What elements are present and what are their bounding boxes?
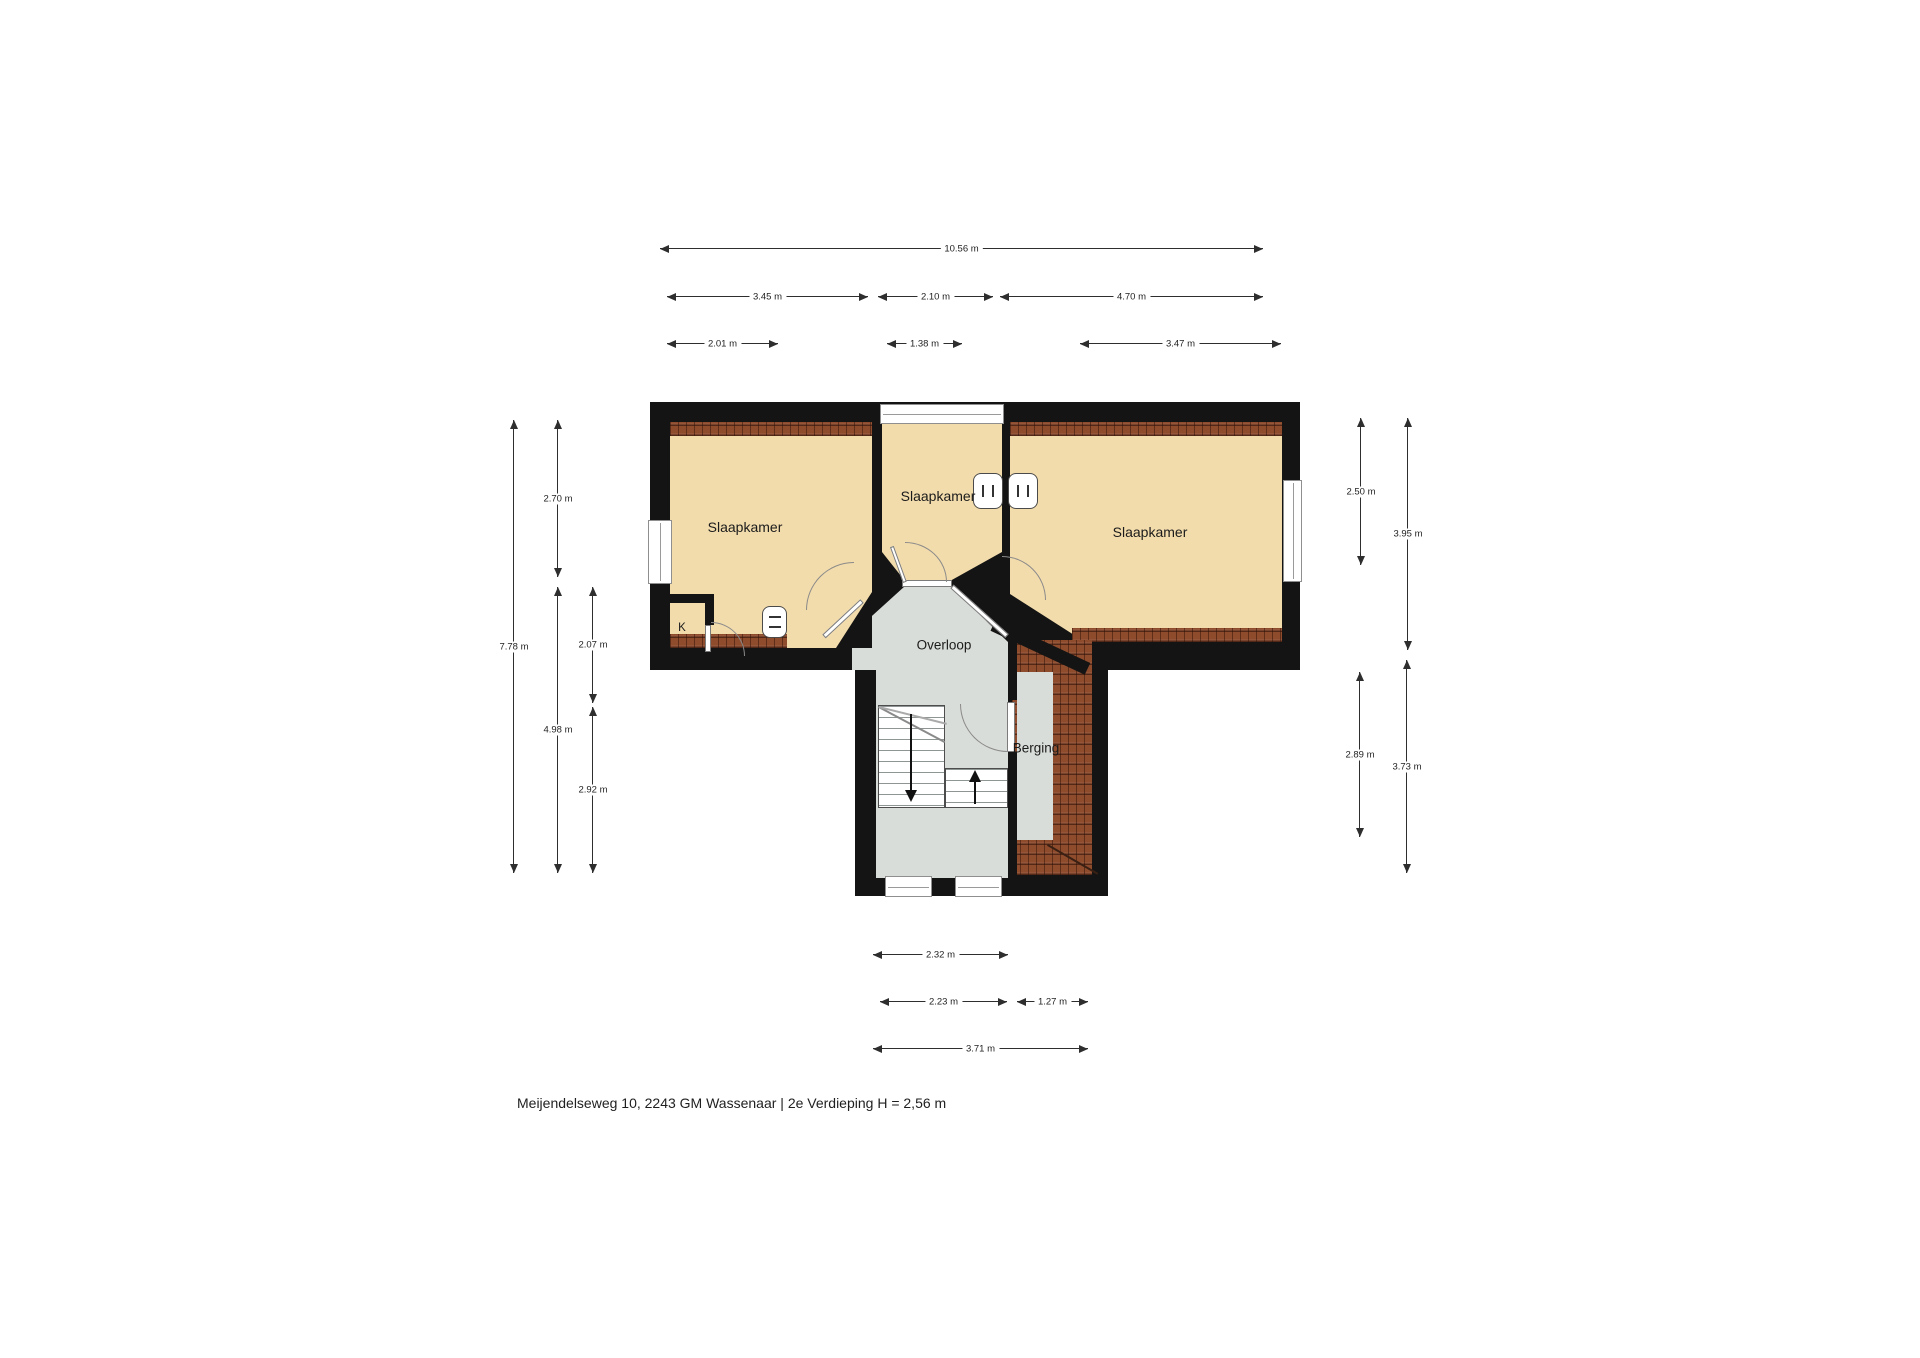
stairs-up-arrow-icon — [969, 770, 981, 782]
dimension-top-total: 10.56 m — [660, 248, 1263, 249]
room-label-left-bedroom: Slaapkamer — [708, 519, 783, 535]
room-label-closet: K — [678, 622, 686, 634]
roof-hatch-right-top — [1010, 422, 1282, 436]
dimension-label: 3.73 m — [1388, 761, 1425, 772]
dimension-bottom-total: 3.71 m — [873, 1048, 1088, 1049]
radiator-glyph — [769, 616, 781, 628]
radiator-glyph — [1017, 485, 1029, 497]
roof-hatch-right-bottom — [1072, 628, 1282, 642]
dimension-label: 7.78 m — [495, 641, 532, 652]
dimension-label: 2.89 m — [1341, 749, 1378, 760]
address-caption: Meijendelseweg 10, 2243 GM Wassenaar | 2… — [517, 1095, 946, 1111]
dimension-label: 3.95 m — [1389, 529, 1426, 540]
radiator-icon-middle-a — [973, 473, 1003, 509]
dimension-bottom-inner-left: 2.23 m — [880, 1001, 1007, 1002]
dimension-label: 1.27 m — [1034, 997, 1071, 1008]
dimension-label: 2.01 m — [704, 339, 741, 350]
dimension-bottom-inner-right: 1.27 m — [1017, 1001, 1088, 1002]
dimension-label: 2.07 m — [574, 640, 611, 651]
window-stairwell-2 — [955, 876, 1002, 897]
dimension-label: 2.10 m — [917, 292, 954, 303]
storage-wall-upper — [1008, 640, 1017, 700]
dimension-left-inner-lower: 2.92 m — [592, 707, 593, 873]
dimension-right-lower-inner: 2.89 m — [1359, 672, 1360, 837]
dimension-label: 3.45 m — [749, 292, 786, 303]
dimension-label: 3.71 m — [962, 1044, 999, 1055]
dimension-top-inner-right: 3.47 m — [1080, 343, 1281, 344]
window-left-bedroom — [648, 520, 672, 584]
room-label-storage: Berging — [1013, 741, 1060, 756]
dimension-right-lower-outer: 3.73 m — [1406, 660, 1407, 873]
window-middle-bedroom — [880, 404, 1004, 424]
dimension-label: 1.38 m — [906, 339, 943, 350]
closet-wall-top — [668, 594, 714, 603]
dimension-left-total: 7.78 m — [513, 420, 514, 873]
stairs-down-arrow-shaft — [910, 714, 912, 792]
dimension-top-right: 4.70 m — [1000, 296, 1263, 297]
dimension-label: 2.23 m — [925, 997, 962, 1008]
dimension-label: 2.70 m — [539, 493, 576, 504]
dimension-left-inner-upper: 2.07 m — [592, 587, 593, 703]
dimension-label: 4.98 m — [539, 725, 576, 736]
room-label-middle-bedroom: Slaapkamer — [901, 488, 976, 504]
radiator-icon-middle-b — [1008, 473, 1038, 509]
dimension-bottom-stem: 2.32 m — [873, 954, 1008, 955]
window-right-bedroom — [1283, 480, 1302, 582]
dimension-top-middle: 2.10 m — [878, 296, 993, 297]
dimension-right-upper-inner: 2.50 m — [1360, 418, 1361, 565]
dimension-label: 4.70 m — [1113, 292, 1150, 303]
dimension-right-upper-outer: 3.95 m — [1407, 418, 1408, 650]
storage-floor — [1017, 672, 1053, 840]
dimension-top-inner-middle: 1.38 m — [887, 343, 962, 344]
dimension-label: 3.47 m — [1162, 339, 1199, 350]
stairs-down-arrow-icon — [905, 790, 917, 802]
stairs-up-arrow-shaft — [974, 782, 976, 804]
dimension-top-inner-left: 2.01 m — [667, 343, 778, 344]
dimension-label: 2.92 m — [574, 785, 611, 796]
dimension-label: 2.32 m — [922, 950, 959, 961]
radiator-glyph — [982, 485, 994, 497]
storage-wall-lower — [1008, 752, 1017, 878]
dimension-left-lower: 4.98 m — [557, 587, 558, 873]
dimension-label: 2.50 m — [1342, 486, 1379, 497]
window-stairwell-1 — [885, 876, 932, 897]
room-label-right-bedroom: Slaapkamer — [1113, 524, 1188, 540]
roof-hatch-left-top — [670, 422, 872, 436]
dimension-top-left: 3.45 m — [667, 296, 868, 297]
room-label-landing: Overloop — [917, 638, 972, 653]
dimension-left-upper: 2.70 m — [557, 420, 558, 577]
dimension-label: 10.56 m — [940, 244, 982, 255]
floor-plan-page: Slaapkamer Slaapkamer Slaapkamer Overloo… — [0, 0, 1920, 1358]
radiator-icon-left — [762, 606, 787, 638]
